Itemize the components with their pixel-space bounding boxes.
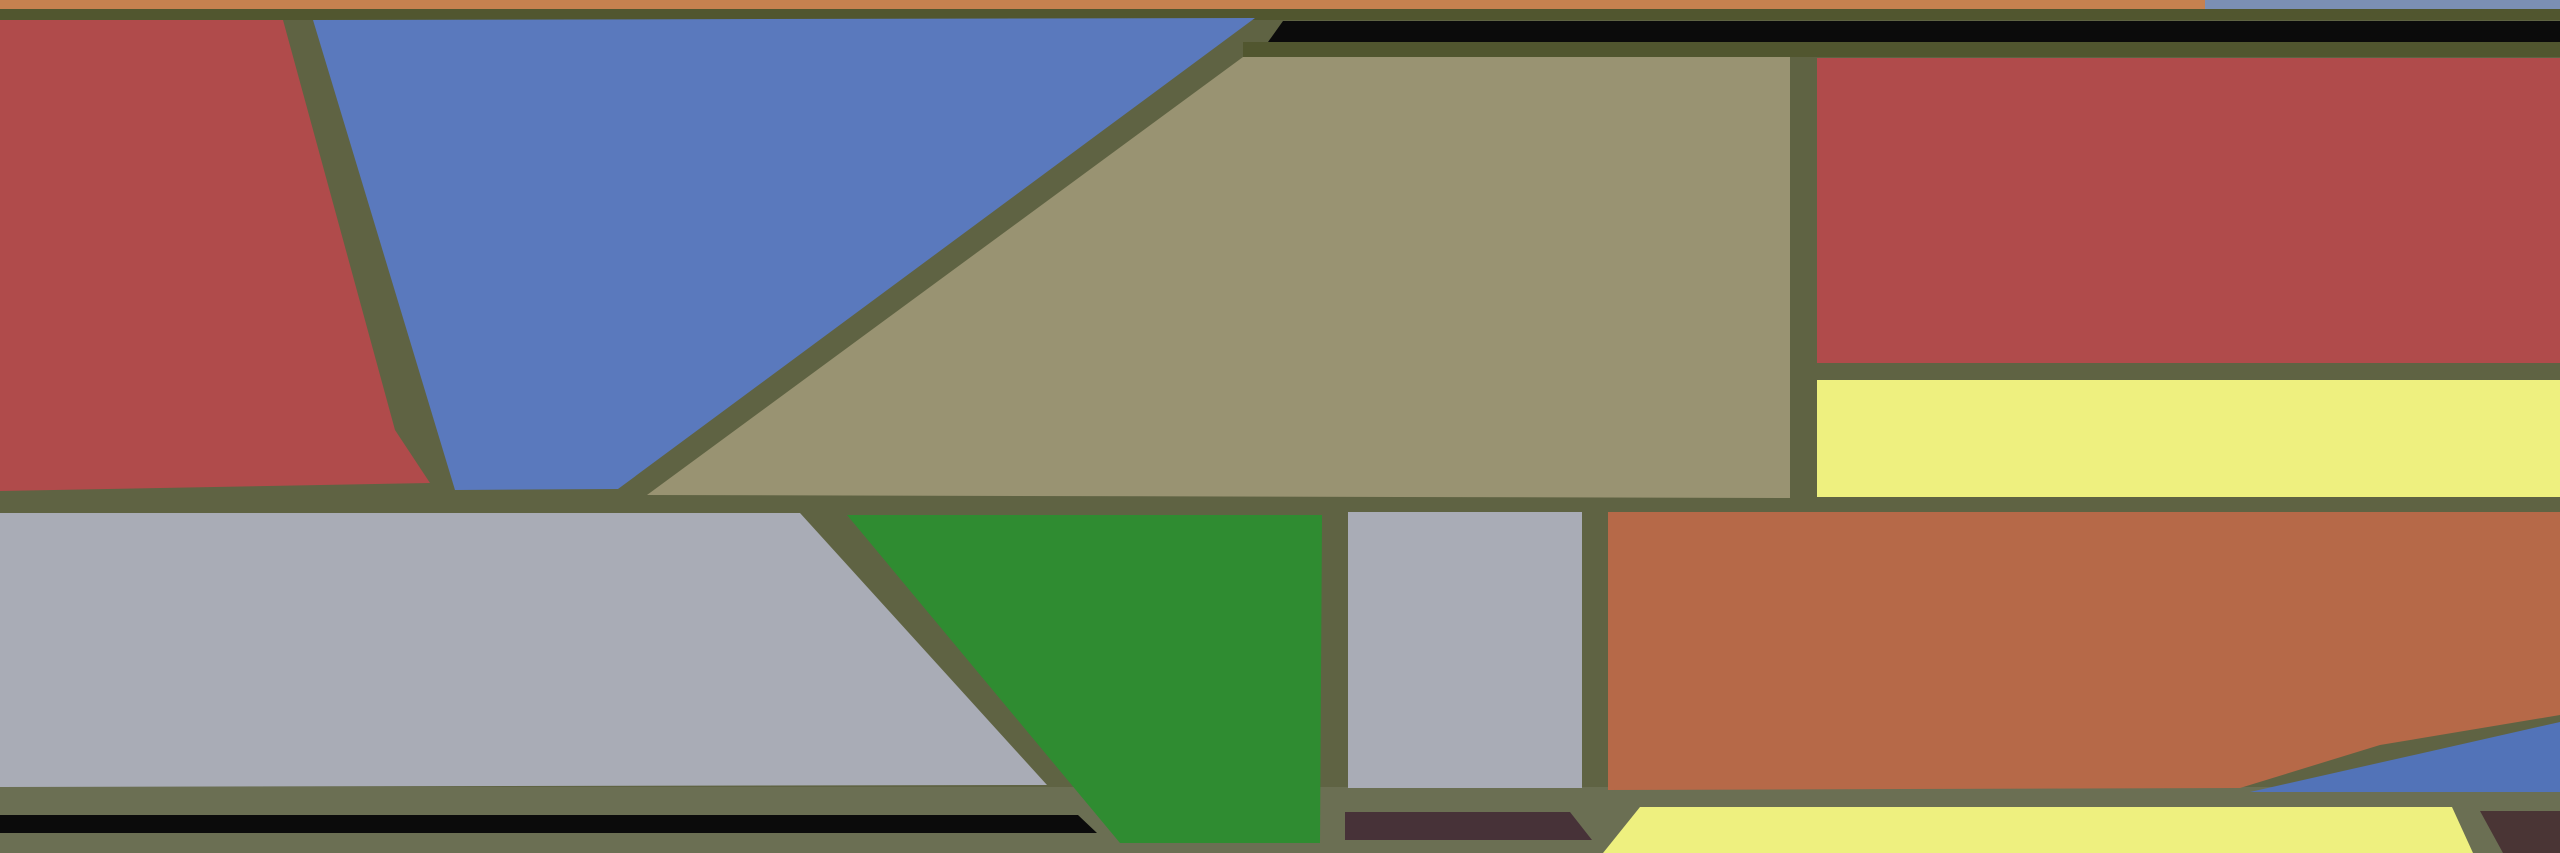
black-top-strip: [1268, 21, 2560, 42]
terracotta-panel: [1608, 512, 2560, 790]
abstract-artwork: [0, 0, 2560, 853]
yellow-bottom-strip: [1603, 807, 2473, 853]
maroon-bottom-strip: [1345, 812, 1592, 840]
black-strip-shadow-band: [1243, 42, 2560, 57]
top-strip-orange: [0, 0, 2205, 9]
gray-middle-panel: [1348, 512, 1582, 788]
black-bottom-strip: [0, 815, 1097, 833]
red-top-right-panel: [1817, 58, 2560, 363]
yellow-right-strip: [1817, 380, 2560, 497]
top-border-dark-band: [0, 8, 2560, 20]
artwork-canvas: [0, 0, 2560, 853]
top-strip-muted-blue: [2205, 0, 2560, 9]
